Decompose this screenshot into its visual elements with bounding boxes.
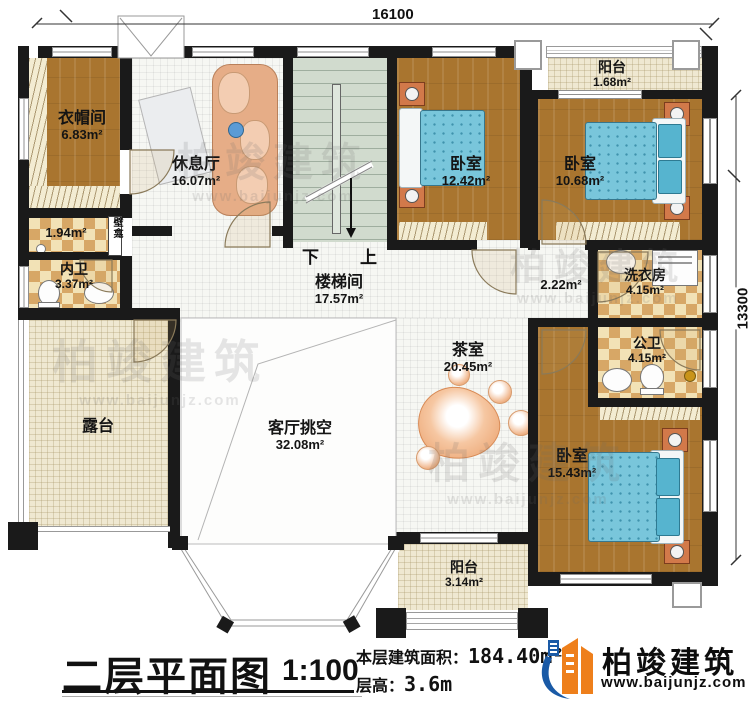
wall-segment xyxy=(588,398,702,407)
room-name: 卧室 xyxy=(548,448,596,466)
wall-segment xyxy=(120,46,132,150)
bed-cushion xyxy=(658,124,682,158)
niche-box: 壁龛 xyxy=(108,216,122,256)
floor-area-line: 本层建筑面积：184.40m² xyxy=(356,644,564,668)
floor-plan-page: 壁龛 xyxy=(0,0,750,706)
decor-pebble xyxy=(488,380,512,404)
pillar xyxy=(8,522,38,550)
window xyxy=(297,47,369,57)
bedroom2-wardrobe xyxy=(556,222,680,240)
room-name: 楼梯间 xyxy=(315,274,363,292)
wall-segment xyxy=(18,308,180,320)
stair-up-label: 上 xyxy=(360,243,377,268)
dim-top-value: 16100 xyxy=(368,6,418,23)
window xyxy=(420,533,498,543)
window xyxy=(19,98,29,160)
wall-segment xyxy=(387,240,477,250)
dim-tick xyxy=(32,18,42,28)
nightstand xyxy=(662,428,688,452)
room-area: 20.45m² xyxy=(444,360,492,375)
floor-height-label: 层高： xyxy=(356,678,404,695)
room-area: 1.94m² xyxy=(45,226,86,241)
bed-cushion xyxy=(658,160,682,194)
room-area: 6.83m² xyxy=(58,128,106,143)
window xyxy=(703,255,717,313)
room-area: 3.37m² xyxy=(55,278,93,291)
bay-window-mid xyxy=(178,544,398,626)
wall-segment xyxy=(387,46,397,250)
floor-height-line: 层高：3.6m xyxy=(356,672,452,696)
sliding-door xyxy=(558,90,642,99)
room-name: 客厅挑空 xyxy=(268,420,332,438)
window xyxy=(703,118,717,184)
nightstand xyxy=(399,82,425,106)
brand-website: www.baijunjz.com xyxy=(601,674,746,691)
window xyxy=(703,330,717,388)
cloakroom-wardrobe xyxy=(29,58,47,190)
room-label-public-bath: 公卫 4.15m² xyxy=(628,336,666,365)
window xyxy=(52,47,112,57)
bay-post xyxy=(216,616,234,634)
room-name: 阳台 xyxy=(593,60,631,76)
floor-drain xyxy=(684,370,696,382)
stair-rail xyxy=(332,84,341,234)
bay-window-inner xyxy=(184,548,392,620)
room-label-closet: 1.94m² xyxy=(45,226,86,241)
sofa-cushion xyxy=(240,120,270,160)
room-label-hallway: 2.22m² xyxy=(540,278,581,293)
room-label-stairwell: 楼梯间 17.57m² xyxy=(315,274,363,306)
room-name: 洗衣房 xyxy=(624,268,666,284)
window xyxy=(703,440,717,512)
room-area: 17.57m² xyxy=(315,292,363,307)
toilet-tank xyxy=(640,388,664,395)
wall-segment xyxy=(18,252,122,260)
terrace-railing xyxy=(18,526,170,532)
toilet xyxy=(640,364,664,390)
washer-detail xyxy=(658,262,692,264)
room-label-bedroom2: 卧室 10.68m² xyxy=(556,156,604,188)
room-area: 32.08m² xyxy=(268,438,332,453)
cloakroom-wardrobe-bottom xyxy=(29,186,120,208)
wall-segment xyxy=(588,318,702,327)
room-area: 4.15m² xyxy=(624,284,666,297)
room-area: 16.07m² xyxy=(172,174,220,189)
corner-leader xyxy=(728,170,740,182)
wall-segment xyxy=(283,46,293,248)
wall-segment xyxy=(585,240,702,250)
bedroom1-wardrobe xyxy=(399,222,487,240)
bed xyxy=(588,452,660,542)
wall-segment xyxy=(528,318,598,327)
corner-leader xyxy=(700,28,712,40)
room-name: 休息厅 xyxy=(172,156,220,174)
sofa-cushion xyxy=(236,166,268,204)
logo-building2 xyxy=(581,646,593,694)
dim-tick xyxy=(731,90,741,100)
room-area: 12.42m² xyxy=(442,174,490,189)
logo-window xyxy=(550,643,557,645)
brand-logo xyxy=(536,634,596,700)
window xyxy=(19,266,29,308)
room-label-inner-bath: 内卫 3.37m² xyxy=(55,262,93,291)
bath-sink xyxy=(602,368,632,392)
room-area: 2.22m² xyxy=(540,278,581,293)
pillar xyxy=(672,40,700,70)
balcony-railing xyxy=(406,612,518,630)
wall-segment xyxy=(528,90,538,250)
niche-label: 壁龛 xyxy=(109,217,124,239)
room-label-cloakroom: 衣帽间 6.83m² xyxy=(58,110,106,142)
wall-segment xyxy=(132,226,172,236)
logo-building xyxy=(562,638,578,694)
terrace-railing xyxy=(18,320,24,526)
room-label-laundry: 洗衣房 4.15m² xyxy=(624,268,666,297)
bed-cushion xyxy=(656,458,680,496)
floor-height-value: 3.6m xyxy=(404,672,452,696)
room-name: 茶室 xyxy=(444,342,492,360)
room-area: 1.68m² xyxy=(593,76,631,89)
dim-tick xyxy=(709,18,719,28)
room-label-bedroom1: 卧室 12.42m² xyxy=(442,156,490,188)
logo-window xyxy=(550,651,557,653)
room-name: 公卫 xyxy=(628,336,666,352)
wall-segment xyxy=(528,240,540,250)
room-label-balcony-top: 阳台 1.68m² xyxy=(593,60,631,89)
drawing-title: 二层平面图 xyxy=(62,644,272,702)
corner-leader xyxy=(60,10,72,22)
room-label-bedroom3: 卧室 15.43m² xyxy=(548,448,596,480)
sofa-cushion xyxy=(218,72,250,114)
dim-tick xyxy=(731,555,741,565)
room-name: 衣帽间 xyxy=(58,110,106,128)
washer-detail xyxy=(658,256,692,258)
pillar xyxy=(376,608,406,638)
logo-window xyxy=(550,647,557,649)
room-label-living-void: 客厅挑空 32.08m² xyxy=(268,420,332,452)
room-name: 卧室 xyxy=(442,156,490,174)
room-label-tearoom: 茶室 20.45m² xyxy=(444,342,492,374)
drawing-scale: 1:100 xyxy=(282,654,359,688)
dim-right-value: 13300 xyxy=(734,288,750,330)
room-label-lounge: 休息厅 16.07m² xyxy=(172,156,220,188)
room-name: 内卫 xyxy=(55,262,93,278)
stair-down-label: 下 xyxy=(302,243,319,268)
logo-window xyxy=(566,662,574,665)
room-label-terrace: 露台 xyxy=(82,418,114,436)
room-area: 10.68m² xyxy=(556,174,604,189)
room-area: 3.14m² xyxy=(445,576,483,589)
decor-pebble xyxy=(416,446,440,470)
title-underline xyxy=(62,690,354,693)
logo-window xyxy=(566,670,574,673)
window xyxy=(432,47,496,57)
logo-window xyxy=(566,654,574,657)
bay-window-outer xyxy=(176,542,400,630)
wall-segment xyxy=(168,308,180,548)
pillar xyxy=(672,582,702,608)
room-name: 露台 xyxy=(82,418,114,436)
room-area: 15.43m² xyxy=(548,466,596,481)
room-label-balcony-bottom: 阳台 3.14m² xyxy=(445,560,483,589)
room-name: 阳台 xyxy=(445,560,483,576)
bed-cushion xyxy=(656,498,680,536)
person-figure xyxy=(228,122,244,138)
title-underline-thin xyxy=(62,696,362,697)
floor-area-label: 本层建筑面积： xyxy=(356,650,468,667)
window xyxy=(560,574,652,584)
window xyxy=(192,47,254,57)
room-area: 4.15m² xyxy=(628,352,666,365)
room-name: 卧室 xyxy=(556,156,604,174)
bay-post xyxy=(343,615,361,633)
bay-window-band xyxy=(178,544,398,626)
pillar xyxy=(514,40,542,70)
